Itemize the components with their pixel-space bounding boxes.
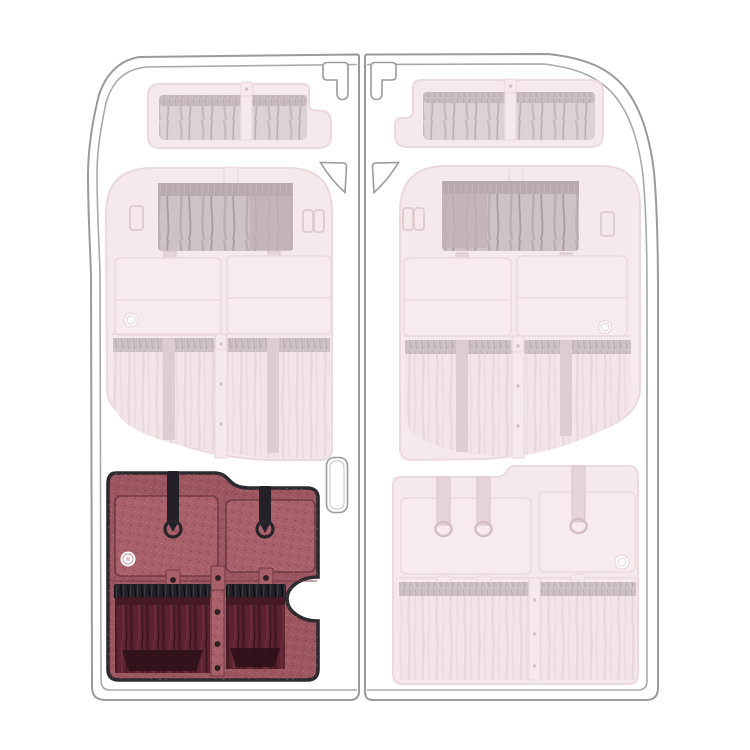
pocket-divider — [241, 89, 252, 140]
elastic-pocket-left — [114, 584, 211, 673]
pocket-divider — [512, 336, 524, 458]
upper-pocket-panel-left-ghost — [148, 82, 331, 148]
logo-badge — [121, 552, 136, 567]
lower-organizer-panel-left-highlighted — [108, 471, 318, 680]
product-image — [0, 0, 750, 750]
logo-badge — [615, 555, 629, 569]
door-cutout-hook-right — [371, 63, 396, 100]
large-mesh-pocket — [158, 183, 293, 251]
large-mesh-pocket — [442, 181, 579, 251]
door-cutout-hook-left — [323, 63, 348, 100]
mid-organizer-panel-right-ghost — [400, 166, 640, 460]
door-handle-recess — [327, 458, 348, 513]
pocket-divider — [215, 334, 227, 458]
mid-organizer-panel-left-ghost — [106, 167, 332, 460]
lower-organizer-panel-right-ghost — [393, 466, 638, 684]
van-door-diagram — [0, 0, 750, 750]
mount-tab — [224, 167, 238, 185]
door-cutout-triangle-right — [372, 163, 398, 193]
mesh-pocket — [159, 95, 307, 140]
logo-badge — [124, 313, 138, 327]
elastic-pocket-right — [226, 584, 286, 669]
elastic-pockets — [399, 582, 636, 680]
logo-badge — [599, 321, 612, 334]
upper-pocket-panel-right-ghost — [395, 79, 603, 147]
pocket-divider — [505, 86, 516, 140]
pocket-divider — [211, 590, 224, 676]
pocket-divider — [529, 578, 540, 680]
